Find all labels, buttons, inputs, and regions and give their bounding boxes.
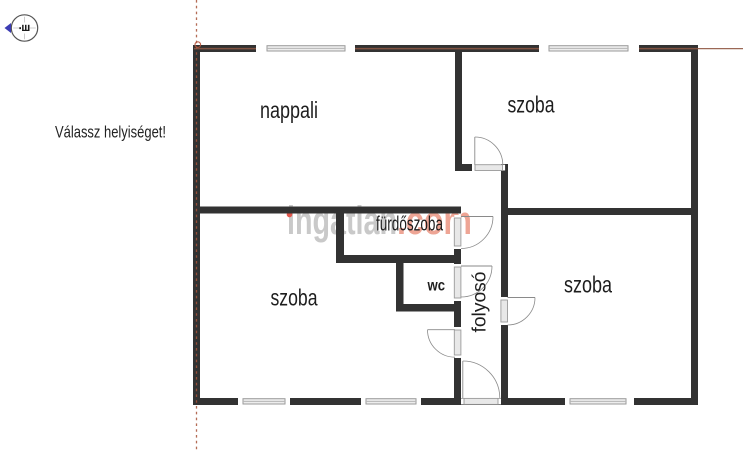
svg-text:folyosó: folyosó xyxy=(469,271,491,332)
svg-text:fürdőszoba: fürdőszoba xyxy=(376,214,444,236)
svg-text:szoba: szoba xyxy=(564,272,613,298)
svg-text:szoba: szoba xyxy=(508,92,556,118)
svg-text:nappali: nappali xyxy=(260,97,318,123)
svg-text:wc: wc xyxy=(427,278,446,295)
svg-text:Válassz helyiséget!: Válassz helyiséget! xyxy=(55,123,166,142)
svg-text:szoba: szoba xyxy=(271,285,319,311)
